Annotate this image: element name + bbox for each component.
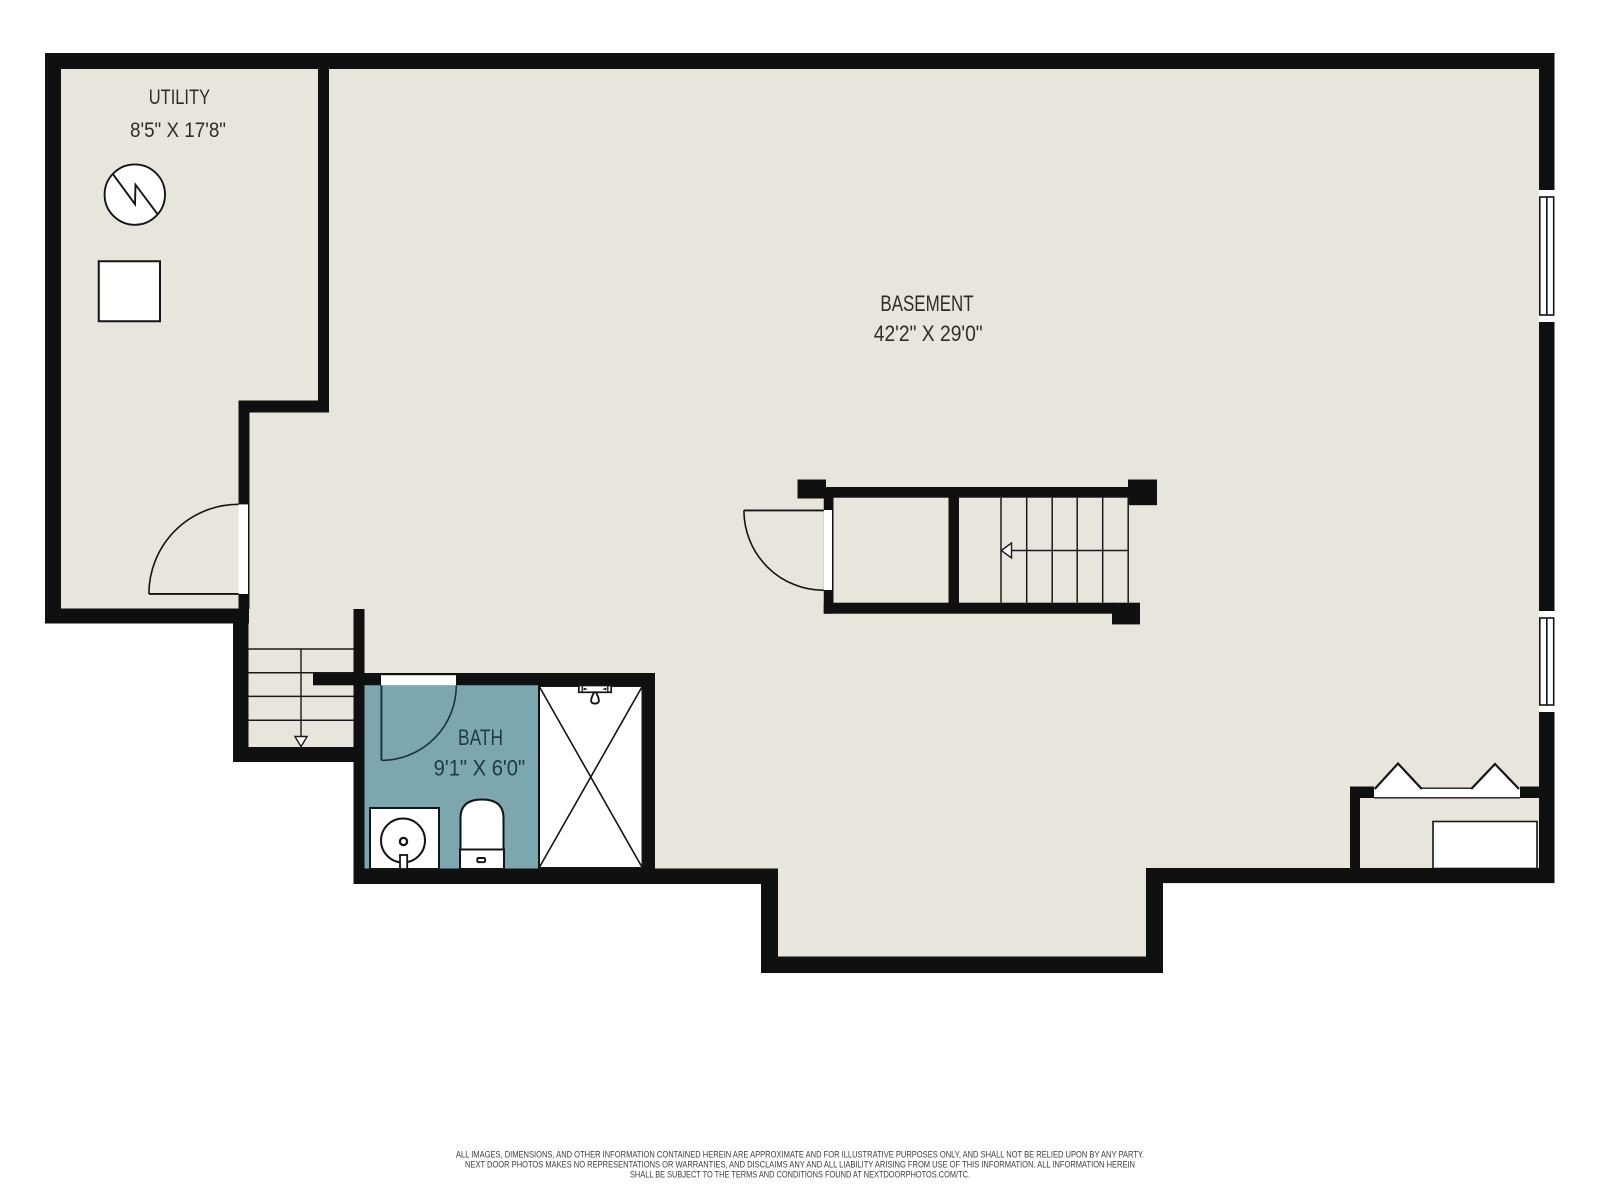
svg-text:ALL IMAGES, DIMENSIONS, AND OT: ALL IMAGES, DIMENSIONS, AND OTHER INFORM…: [456, 1150, 1144, 1160]
svg-text:BATH: BATH: [458, 725, 503, 750]
svg-text:UTILITY: UTILITY: [149, 86, 210, 109]
svg-text:SHALL BE SUBJECT TO THE TERMS: SHALL BE SUBJECT TO THE TERMS AND CONDIT…: [630, 1169, 970, 1179]
svg-text:BASEMENT: BASEMENT: [880, 291, 973, 316]
svg-text:8'5" X 17'8": 8'5" X 17'8": [130, 119, 226, 142]
svg-text:9'1" X 6'0": 9'1" X 6'0": [434, 756, 526, 781]
svg-text:42'2" X 29'0": 42'2" X 29'0": [874, 321, 983, 346]
svg-text:NEXT DOOR PHOTOS MAKES NO REPR: NEXT DOOR PHOTOS MAKES NO REPRESENTATION…: [465, 1160, 1135, 1170]
